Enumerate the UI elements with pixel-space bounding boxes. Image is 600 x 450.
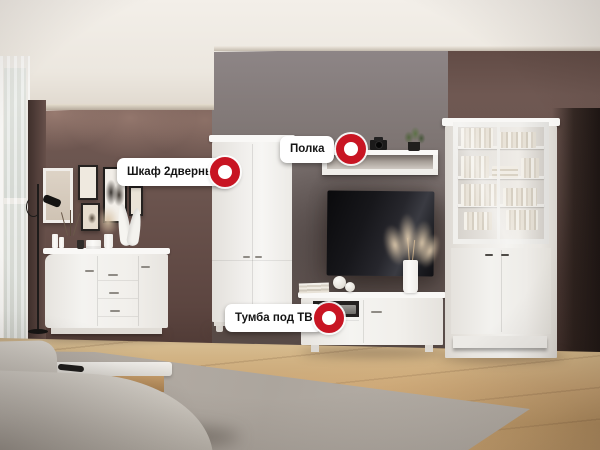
shelf-bottom-board [322, 169, 438, 175]
cabinet-handle [501, 254, 509, 256]
decor-box [86, 240, 101, 249]
drawer-seam [98, 280, 138, 281]
knit-ball-decor [345, 282, 355, 292]
tv-stand-seam [363, 300, 364, 343]
hotspot-shelf-icon[interactable] [336, 134, 366, 164]
wardrobe-handle [255, 256, 262, 258]
tv-stand-leg [311, 345, 319, 352]
glass-reflection [453, 122, 549, 244]
black-vase [77, 240, 84, 249]
picture-frame-2 [78, 165, 98, 200]
pampas-vase-large [403, 260, 418, 293]
sideboard-plinth [51, 328, 162, 334]
drawer-handle [110, 310, 120, 312]
cabinet-handle [485, 254, 493, 256]
cornice-right [214, 46, 600, 51]
wardrobe-handle [243, 256, 250, 258]
tv-stand-leg [425, 345, 433, 352]
magazine-stack [299, 282, 329, 293]
cabinet-door-seam [501, 250, 502, 332]
label-shelf[interactable]: Полка [280, 136, 334, 163]
door-handle [141, 266, 150, 268]
sideboard [45, 248, 168, 336]
camera-lens [375, 141, 383, 149]
potted-plant-pot [408, 142, 420, 151]
drawer-seam [98, 316, 138, 317]
vase-decor [52, 234, 58, 248]
cabinet-plinth [453, 336, 547, 348]
drawer-seam [98, 298, 138, 299]
hotspot-tv-stand-icon[interactable] [314, 303, 344, 333]
dried-twig [70, 210, 71, 236]
wardrobe-door-seam [212, 260, 292, 261]
tv-stand-door-handle [371, 311, 382, 313]
wall-shadow-right [552, 108, 600, 360]
pampas-decor [97, 206, 119, 236]
product-scene: Шкаф 2дверный Полка Тумба под ТВ [0, 0, 600, 450]
door-handle [85, 270, 94, 272]
sideboard-seam [138, 256, 139, 326]
wardrobe-leg [216, 326, 223, 332]
display-cabinet [445, 118, 557, 358]
drawer-handle [108, 274, 118, 276]
label-tv-stand[interactable]: Тумба под ТВ [225, 304, 323, 332]
drawer-handle [109, 292, 119, 294]
hotspot-wardrobe-icon[interactable] [210, 157, 240, 187]
floor-lamp-pole [37, 184, 39, 332]
wardrobe-door-seam [252, 144, 253, 320]
pampas-vase [104, 234, 113, 249]
vase-decor [59, 237, 64, 248]
